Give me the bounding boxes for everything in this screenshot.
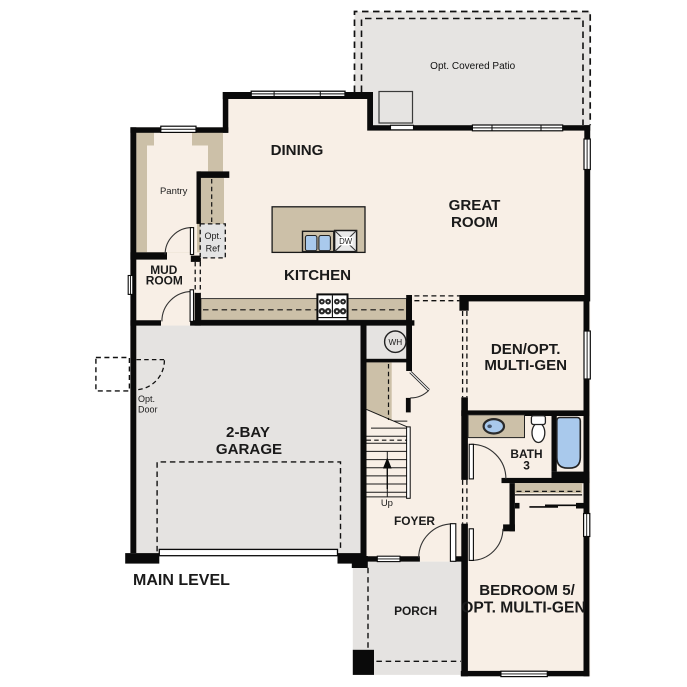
svg-text:Opt.: Opt.: [204, 231, 221, 241]
svg-text:GREAT: GREAT: [449, 197, 501, 214]
svg-text:DW: DW: [339, 237, 353, 246]
svg-text:Up: Up: [381, 498, 393, 509]
svg-text:FOYER: FOYER: [394, 514, 435, 528]
svg-text:OPT. MULTI-GEN: OPT. MULTI-GEN: [461, 600, 585, 617]
svg-text:GARAGE: GARAGE: [216, 441, 282, 458]
svg-text:Door: Door: [138, 405, 158, 415]
svg-text:WH: WH: [388, 338, 402, 347]
svg-text:Ref: Ref: [206, 244, 221, 254]
svg-text:DEN/OPT.: DEN/OPT.: [491, 341, 561, 358]
svg-text:Pantry: Pantry: [160, 186, 188, 197]
svg-text:MULTI-GEN: MULTI-GEN: [484, 357, 567, 374]
svg-text:BEDROOM 5/: BEDROOM 5/: [479, 582, 575, 599]
svg-text:PORCH: PORCH: [394, 604, 437, 618]
svg-text:KITCHEN: KITCHEN: [284, 267, 351, 284]
svg-text:ROOM: ROOM: [451, 214, 498, 231]
svg-text:MAIN LEVEL: MAIN LEVEL: [133, 572, 230, 589]
svg-text:DINING: DINING: [271, 142, 324, 159]
svg-text:ROOM: ROOM: [146, 274, 183, 288]
svg-text:Opt. Covered Patio: Opt. Covered Patio: [430, 61, 515, 72]
svg-text:3: 3: [523, 459, 530, 473]
svg-text:2-BAY: 2-BAY: [226, 424, 270, 441]
svg-text:Opt.: Opt.: [138, 394, 155, 404]
